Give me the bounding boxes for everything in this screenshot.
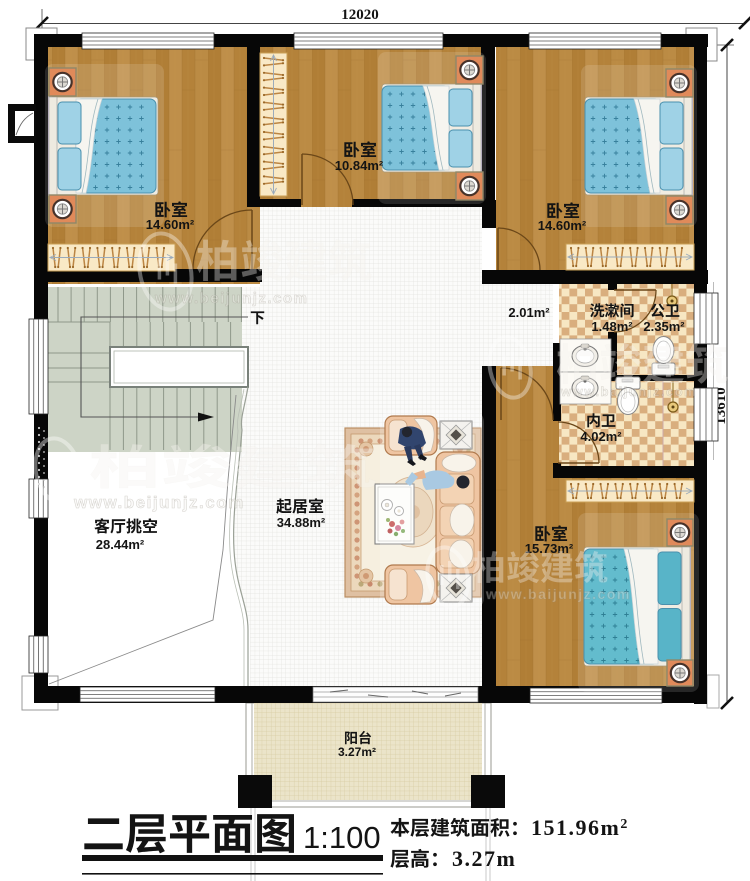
svg-text:www.baijunjz.com: www.baijunjz.com — [560, 384, 697, 399]
svg-text:1.48m²: 1.48m² — [591, 319, 633, 334]
svg-text:1:100: 1:100 — [303, 820, 381, 855]
svg-text:www.beijunjz.com: www.beijunjz.com — [73, 493, 245, 512]
svg-text:14.60m²: 14.60m² — [146, 217, 195, 232]
svg-text:10.84m²: 10.84m² — [335, 158, 384, 173]
svg-text:14.60m²: 14.60m² — [538, 218, 587, 233]
svg-text:12020: 12020 — [341, 7, 379, 23]
svg-text:4.02m²: 4.02m² — [580, 429, 622, 444]
svg-text:2.35m²: 2.35m² — [643, 319, 685, 334]
svg-text:3.27m: 3.27m — [452, 846, 516, 871]
svg-text:28.44m²: 28.44m² — [96, 537, 145, 552]
svg-text:3.27m²: 3.27m² — [338, 745, 376, 759]
svg-text:www.baijunjz.com: www.baijunjz.com — [485, 586, 631, 602]
svg-text:34.88m²: 34.88m² — [277, 515, 326, 530]
svg-text:www.beijunjz.com: www.beijunjz.com — [154, 290, 308, 307]
svg-text:151.96m2: 151.96m2 — [531, 815, 629, 840]
svg-text:2.01m²: 2.01m² — [508, 305, 550, 320]
